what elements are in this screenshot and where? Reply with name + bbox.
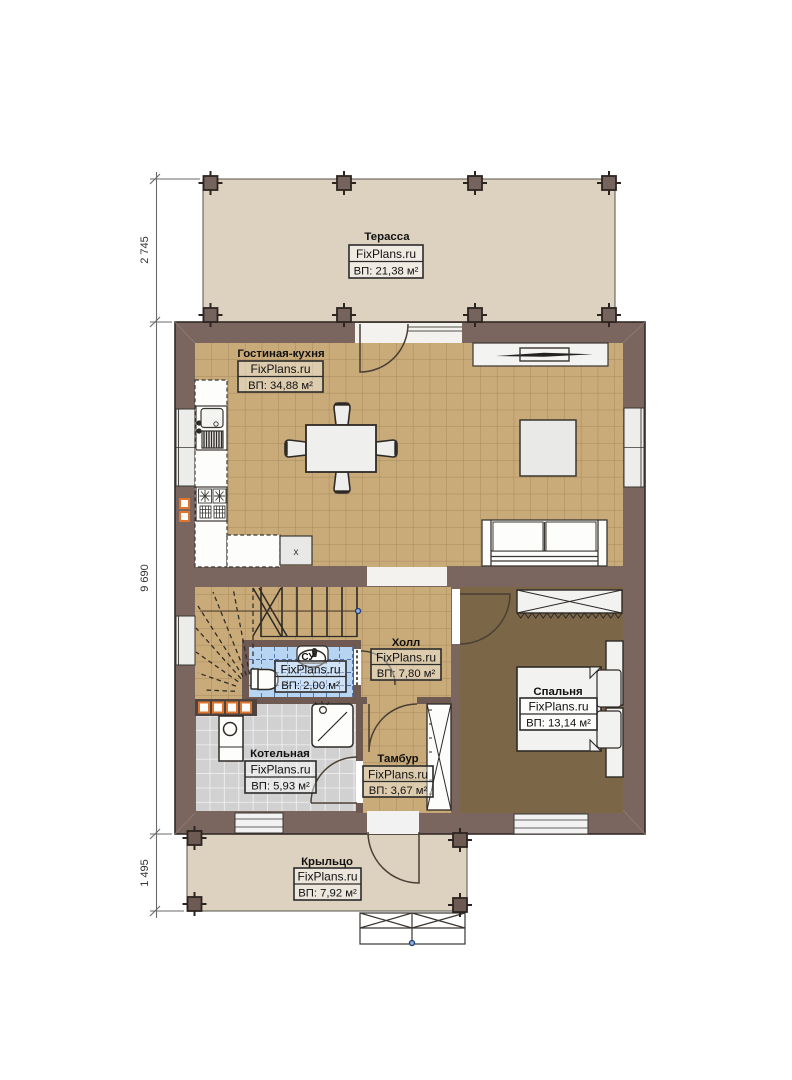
svg-text:Холл: Холл (392, 637, 421, 649)
svg-text:FixPlans.ru: FixPlans.ru (297, 870, 357, 884)
svg-text:Терасса: Терасса (364, 231, 410, 243)
svg-text:Гостиная-кухня: Гостиная-кухня (237, 348, 324, 360)
svg-text:ВП: 5,93 м²: ВП: 5,93 м² (251, 781, 310, 793)
svg-text:ВП: 7,80 м²: ВП: 7,80 м² (377, 668, 436, 680)
svg-text:x: x (294, 547, 299, 558)
svg-text:FixPlans.ru: FixPlans.ru (250, 763, 310, 777)
svg-text:Тамбур: Тамбур (377, 753, 418, 765)
svg-text:FixPlans.ru: FixPlans.ru (356, 247, 416, 261)
svg-text:FixPlans.ru: FixPlans.ru (376, 651, 436, 665)
svg-text:2 745: 2 745 (139, 236, 151, 264)
svg-text:ВП: 3,67 м²: ВП: 3,67 м² (369, 785, 428, 797)
svg-text:ВП: 13,14 м²: ВП: 13,14 м² (526, 718, 591, 730)
svg-text:ВП: 34,88 м²: ВП: 34,88 м² (248, 380, 313, 392)
svg-text:Спальня: Спальня (533, 686, 582, 698)
svg-text:1 495: 1 495 (139, 859, 151, 887)
svg-text:FixPlans.ru: FixPlans.ru (368, 768, 428, 782)
svg-text:Котельная: Котельная (250, 748, 310, 760)
svg-text:FixPlans.ru: FixPlans.ru (528, 700, 588, 714)
svg-text:ВП: 7,92 м²: ВП: 7,92 м² (298, 888, 357, 900)
svg-text:ВП: 21,38 м²: ВП: 21,38 м² (354, 266, 419, 278)
svg-text:9 690: 9 690 (139, 564, 151, 592)
svg-text:FixPlans.ru: FixPlans.ru (250, 362, 310, 376)
svg-text:FixPlans.ru: FixPlans.ru (280, 663, 340, 677)
svg-text:Крыльцо: Крыльцо (301, 856, 353, 868)
svg-text:ВП: 2,00 м²: ВП: 2,00 м² (281, 680, 340, 692)
